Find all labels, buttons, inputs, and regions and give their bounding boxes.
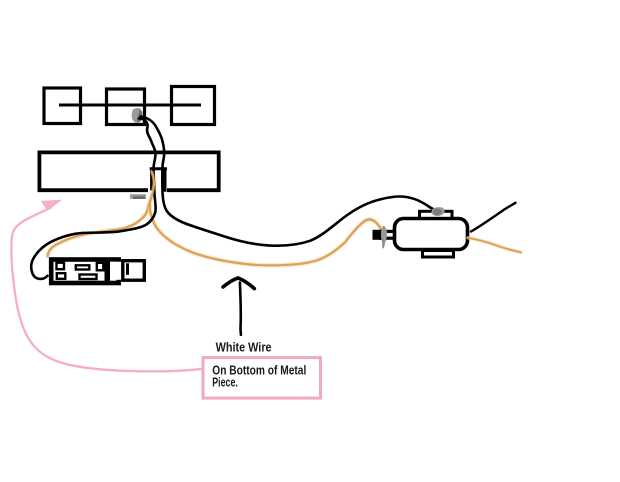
svg-text:White Wire: White Wire [216, 341, 272, 355]
svg-text:Piece.: Piece. [212, 375, 238, 390]
